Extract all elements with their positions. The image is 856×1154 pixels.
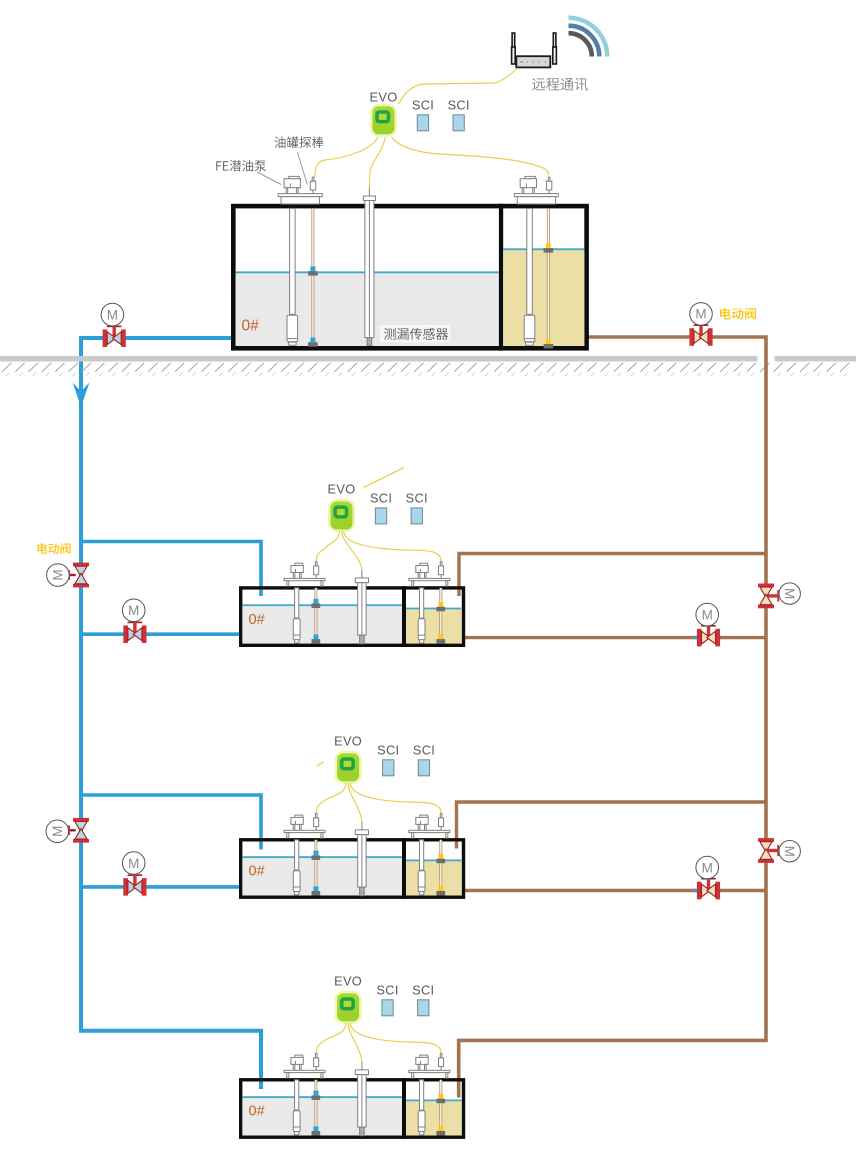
svg-text:SCI: SCI xyxy=(412,97,434,112)
svg-text:M: M xyxy=(128,603,139,618)
svg-text:EVO: EVO xyxy=(334,974,362,989)
svg-text:M: M xyxy=(782,846,797,857)
svg-text:SCI: SCI xyxy=(406,490,428,505)
svg-text:SCI: SCI xyxy=(376,982,398,997)
svg-text:SCI: SCI xyxy=(370,490,392,505)
svg-text:M: M xyxy=(128,856,139,871)
svg-text:SCI: SCI xyxy=(413,742,435,757)
svg-text:M: M xyxy=(702,860,713,875)
svg-text:EVO: EVO xyxy=(370,90,398,105)
svg-text:SCI: SCI xyxy=(377,742,399,757)
svg-text:M: M xyxy=(695,307,706,322)
svg-text:EVO: EVO xyxy=(328,482,356,497)
svg-text:0#: 0# xyxy=(249,1104,265,1120)
svg-text:M: M xyxy=(51,569,66,580)
svg-text:M: M xyxy=(50,826,65,837)
svg-text:SCI: SCI xyxy=(412,982,434,997)
svg-text:0#: 0# xyxy=(249,864,265,880)
svg-text:M: M xyxy=(107,307,118,322)
svg-text:M: M xyxy=(702,607,713,622)
svg-text:SCI: SCI xyxy=(448,97,470,112)
svg-text:0#: 0# xyxy=(249,612,265,628)
svg-text:0#: 0# xyxy=(242,318,260,335)
svg-text:EVO: EVO xyxy=(334,734,362,749)
svg-text:M: M xyxy=(782,588,797,599)
